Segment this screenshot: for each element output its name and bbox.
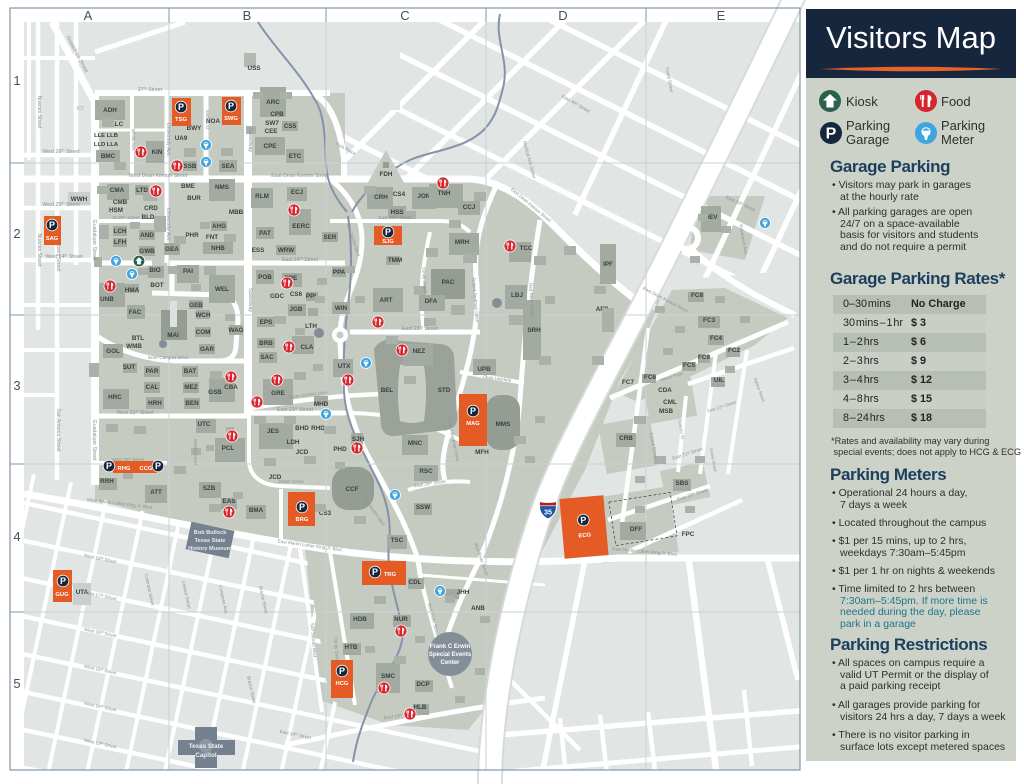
svg-text:West 21ˢᵗ Street: West 21ˢᵗ Street [116, 410, 154, 416]
svg-text:5: 5 [13, 676, 20, 691]
svg-text:BLD: BLD [142, 214, 155, 221]
svg-text:Texas State: Texas State [195, 538, 226, 544]
svg-text:CCJ: CCJ [463, 204, 476, 211]
svg-text:27ᵗʰ Street: 27ᵗʰ Street [138, 87, 163, 93]
svg-text:D: D [558, 8, 567, 23]
svg-text:P: P [470, 406, 476, 416]
svg-text:3: 3 [13, 378, 20, 393]
svg-text:FC9: FC9 [698, 354, 710, 361]
svg-text:FPC: FPC [682, 531, 695, 538]
svg-text:BRB: BRB [259, 340, 273, 347]
svg-text:FC4: FC4 [710, 335, 722, 342]
svg-text:MFH: MFH [475, 449, 489, 456]
svg-text:AHG: AHG [212, 223, 226, 230]
svg-text:Frank C Erwin: Frank C Erwin [430, 644, 471, 650]
svg-text:HDB: HDB [353, 616, 367, 623]
svg-text:MMS: MMS [496, 421, 511, 428]
svg-text:CMA: CMA [110, 187, 125, 194]
svg-text:IC²: IC² [76, 106, 84, 112]
svg-text:Inner Campus Drive: Inner Campus Drive [148, 355, 189, 360]
svg-text:PPA: PPA [333, 269, 346, 276]
svg-text:NUR: NUR [394, 616, 408, 623]
svg-text:Whitis Ave.: Whitis Ave. [131, 129, 136, 152]
svg-text:PAI: PAI [183, 268, 193, 275]
svg-text:PAC: PAC [442, 279, 455, 286]
svg-text:CRH: CRH [374, 194, 388, 201]
svg-text:UTC: UTC [198, 421, 211, 428]
svg-text:East 23ʳᵈ Street: East 23ʳᵈ Street [402, 326, 439, 332]
svg-text:FNT: FNT [206, 234, 218, 241]
svg-text:CS5: CS5 [284, 123, 297, 130]
svg-text:35: 35 [544, 508, 552, 517]
svg-text:UTX: UTX [338, 363, 351, 370]
svg-text:P: P [228, 101, 234, 111]
svg-text:P: P [178, 102, 184, 112]
svg-text:Nueces Street: Nueces Street [36, 234, 42, 267]
svg-text:LTH: LTH [305, 323, 317, 330]
svg-text:CS4: CS4 [393, 191, 406, 198]
svg-text:SUT: SUT [123, 364, 136, 371]
svg-text:East 21ˢᵗ Street: East 21ˢᵗ Street [277, 407, 313, 413]
svg-text:RRH: RRH [100, 478, 114, 485]
svg-text:DFF: DFF [630, 526, 642, 533]
svg-text:SSW: SSW [416, 504, 430, 511]
svg-text:BTL: BTL [132, 335, 144, 342]
svg-text:WIN: WIN [335, 305, 348, 312]
svg-text:Nueces Street: Nueces Street [36, 96, 42, 129]
svg-text:JES: JES [267, 428, 279, 435]
svg-text:P: P [299, 502, 305, 512]
svg-text:MRH: MRH [455, 239, 470, 246]
svg-text:Guadalupe Street: Guadalupe Street [91, 420, 97, 461]
svg-text:P: P [106, 461, 112, 471]
svg-text:West 24ᵗʰ Street: West 24ᵗʰ Street [45, 254, 83, 260]
svg-text:P: P [372, 567, 378, 577]
svg-text:CRB: CRB [619, 435, 633, 442]
svg-text:FC2: FC2 [728, 347, 740, 354]
svg-text:UNB: UNB [100, 296, 114, 303]
svg-text:CS6: CS6 [290, 291, 303, 298]
svg-text:Wichita Street: Wichita Street [193, 439, 198, 466]
svg-text:DFA: DFA [425, 298, 438, 305]
svg-text:CPE: CPE [264, 143, 277, 150]
svg-text:BME: BME [181, 183, 195, 190]
svg-text:NEZ: NEZ [413, 348, 426, 355]
svg-text:BMC: BMC [101, 153, 116, 160]
svg-text:HCG: HCG [336, 681, 349, 687]
svg-text:CCG: CCG [140, 466, 153, 472]
svg-text:POB: POB [258, 274, 272, 281]
svg-text:P: P [49, 220, 55, 230]
svg-text:CEE: CEE [265, 128, 278, 135]
svg-text:RHD: RHD [311, 425, 325, 432]
svg-text:FC6: FC6 [644, 374, 656, 381]
svg-text:SRH: SRH [527, 327, 541, 334]
svg-text:DCP: DCP [416, 681, 429, 688]
svg-text:PAT: PAT [259, 230, 271, 237]
svg-text:SW7: SW7 [265, 120, 279, 127]
svg-text:HRH: HRH [148, 400, 162, 407]
svg-text:CMB: CMB [113, 199, 128, 206]
svg-text:BAT: BAT [184, 368, 197, 375]
svg-text:A: A [84, 8, 93, 23]
svg-text:NHB: NHB [211, 245, 225, 252]
svg-text:JCD: JCD [296, 449, 309, 456]
svg-text:LCH: LCH [114, 228, 127, 235]
svg-text:East 25th Street: East 25th Street [379, 215, 413, 220]
svg-text:BUR: BUR [187, 195, 201, 202]
svg-text:UIL: UIL [714, 377, 724, 384]
svg-text:PCL: PCL [222, 445, 235, 452]
svg-text:History Museum: History Museum [188, 546, 232, 552]
svg-text:CDL: CDL [409, 579, 422, 586]
svg-text:KIN: KIN [152, 149, 163, 156]
svg-text:E: E [717, 8, 726, 23]
svg-text:HTB: HTB [345, 644, 358, 651]
svg-text:FC7: FC7 [622, 379, 634, 386]
svg-text:CAL: CAL [146, 384, 159, 391]
svg-text:SWG: SWG [224, 116, 238, 122]
svg-text:TNH: TNH [438, 190, 451, 197]
svg-text:MAI: MAI [167, 332, 179, 339]
svg-text:UPB: UPB [477, 366, 491, 373]
svg-text:Bob Bullock: Bob Bullock [194, 530, 228, 536]
svg-text:LLD LLA: LLD LLA [94, 142, 119, 148]
svg-text:B: B [243, 8, 252, 23]
svg-text:SAG: SAG [46, 236, 59, 242]
svg-text:East Dean Keeton Street: East Dean Keeton Street [271, 173, 329, 179]
svg-text:SAC: SAC [260, 354, 274, 361]
svg-text:MBB: MBB [229, 209, 244, 216]
svg-text:FC8: FC8 [691, 292, 703, 299]
svg-text:ESS: ESS [252, 247, 265, 254]
svg-text:WMB: WMB [126, 343, 142, 350]
svg-text:West 26ᵗʰ Street: West 26ᵗʰ Street [42, 149, 80, 155]
svg-text:C: C [400, 8, 409, 23]
svg-text:ECJ: ECJ [291, 189, 304, 196]
svg-text:East 24ᵗʰ Street: East 24ᵗʰ Street [282, 257, 319, 263]
svg-text:P: P [385, 227, 391, 237]
svg-text:4: 4 [13, 529, 20, 544]
svg-text:GDC: GDC [270, 293, 284, 300]
svg-text:Speedway: Speedway [247, 128, 253, 153]
svg-text:HRC: HRC [108, 394, 122, 401]
svg-text:GOL: GOL [106, 348, 120, 355]
svg-text:BEN: BEN [185, 400, 199, 407]
svg-text:SER: SER [324, 234, 337, 241]
svg-text:SMC: SMC [381, 673, 395, 680]
svg-text:P: P [60, 576, 66, 586]
svg-text:SZB: SZB [203, 485, 216, 492]
svg-text:ARC: ARC [266, 99, 280, 106]
svg-text:HSM: HSM [109, 207, 123, 214]
svg-text:University Ave.: University Ave. [165, 123, 171, 157]
svg-text:IPF: IPF [603, 261, 613, 268]
svg-text:Capitol: Capitol [195, 752, 217, 759]
svg-text:CPB: CPB [270, 111, 284, 118]
svg-text:GWB: GWB [139, 248, 155, 255]
svg-text:PAR: PAR [146, 368, 159, 375]
svg-text:LDH: LDH [287, 439, 300, 446]
svg-text:Special Events: Special Events [429, 652, 472, 658]
svg-text:FAC: FAC [129, 309, 142, 316]
svg-text:Speedway: Speedway [247, 288, 253, 313]
svg-text:FDH: FDH [380, 171, 393, 178]
svg-text:GEB: GEB [189, 302, 203, 309]
svg-text:JGB: JGB [290, 306, 303, 313]
svg-text:GUG: GUG [55, 592, 69, 598]
svg-text:RSC: RSC [419, 468, 433, 475]
svg-text:FC3: FC3 [703, 317, 715, 324]
svg-text:SBS: SBS [676, 480, 689, 487]
svg-text:EERC: EERC [292, 223, 310, 230]
svg-text:P: P [826, 126, 837, 143]
svg-text:LBJ: LBJ [511, 292, 523, 299]
svg-text:CDA: CDA [658, 387, 672, 394]
svg-text:Guadalupe Street: Guadalupe Street [91, 220, 97, 261]
svg-text:2: 2 [13, 226, 20, 241]
svg-text:LFH: LFH [114, 239, 127, 246]
svg-text:W 25ᵗʰ Street: W 25ᵗʰ Street [112, 215, 140, 220]
svg-text:P: P [155, 461, 161, 471]
svg-text:WRW: WRW [278, 247, 294, 254]
svg-text:BEL: BEL [381, 387, 394, 394]
svg-text:1: 1 [13, 73, 20, 88]
svg-text:Center: Center [440, 660, 460, 666]
svg-text:MHD: MHD [314, 401, 329, 408]
svg-text:WAG: WAG [228, 327, 243, 334]
svg-text:WEL: WEL [215, 286, 229, 293]
svg-text:RHG: RHG [118, 466, 131, 472]
svg-text:CBA: CBA [224, 384, 238, 391]
svg-text:USS: USS [248, 65, 261, 72]
svg-text:CLA: CLA [301, 344, 314, 351]
svg-text:Texas State: Texas State [189, 743, 224, 750]
svg-text:BWY: BWY [187, 125, 202, 132]
svg-text:ECG: ECG [578, 532, 592, 539]
svg-text:ETC: ETC [289, 153, 302, 160]
svg-text:AND: AND [140, 232, 154, 239]
svg-text:MAG: MAG [466, 421, 480, 427]
svg-text:ADH: ADH [103, 107, 117, 114]
svg-text:ATT: ATT [150, 489, 162, 496]
svg-text:CML: CML [663, 399, 677, 406]
svg-text:GSB: GSB [208, 389, 222, 396]
svg-text:TSC: TSC [391, 537, 404, 544]
svg-text:LLE LLB: LLE LLB [94, 133, 118, 139]
svg-text:BMA: BMA [249, 507, 264, 514]
svg-text:HLB: HLB [414, 704, 427, 711]
svg-text:GAR: GAR [200, 346, 214, 353]
svg-text:P: P [580, 515, 587, 525]
svg-text:NMS: NMS [215, 184, 229, 191]
svg-text:WCH: WCH [195, 312, 210, 319]
svg-text:West 25ᵗʰ Street: West 25ᵗʰ Street [42, 202, 80, 208]
svg-text:Jester Circle: Jester Circle [278, 479, 304, 484]
svg-text:TSG: TSG [175, 117, 187, 123]
svg-text:CCF: CCF [346, 486, 359, 493]
svg-text:PHR: PHR [185, 232, 199, 239]
svg-text:SSB: SSB [184, 163, 197, 170]
svg-text:COM: COM [196, 329, 211, 336]
svg-text:PHD: PHD [333, 446, 347, 453]
svg-text:BHD: BHD [295, 425, 309, 432]
svg-text:University Ave.: University Ave. [165, 208, 171, 242]
svg-text:BOT: BOT [150, 282, 163, 289]
svg-text:HMA: HMA [125, 287, 140, 294]
svg-text:BIO: BIO [149, 267, 160, 274]
svg-text:RLM: RLM [255, 193, 269, 200]
svg-text:MNC: MNC [408, 440, 423, 447]
svg-text:Wichita St.: Wichita St. [205, 110, 210, 130]
svg-text:MSB: MSB [659, 408, 673, 415]
svg-text:EPS: EPS [260, 319, 273, 326]
svg-text:P: P [339, 666, 345, 676]
svg-text:MEZ: MEZ [184, 384, 197, 391]
svg-text:SJG: SJG [382, 239, 394, 245]
svg-text:TCC: TCC [520, 245, 533, 252]
svg-text:San Antonio Street: San Antonio Street [55, 408, 61, 452]
svg-text:ART: ART [380, 297, 393, 304]
svg-text:UA9: UA9 [175, 135, 188, 142]
svg-text:JON: JON [418, 193, 431, 200]
svg-text:FC5: FC5 [683, 362, 695, 369]
svg-text:SEA: SEA [222, 163, 235, 170]
svg-text:GEA: GEA [165, 246, 179, 253]
svg-text:BRG: BRG [296, 517, 309, 523]
svg-text:TRG: TRG [384, 572, 397, 578]
svg-text:GRE: GRE [271, 390, 285, 397]
svg-text:STD: STD [438, 387, 451, 394]
svg-text:JHH: JHH [457, 589, 470, 596]
svg-text:EAS: EAS [223, 498, 236, 505]
svg-text:TMM: TMM [388, 257, 402, 264]
svg-text:CRD: CRD [144, 205, 158, 212]
svg-text:ANB: ANB [471, 605, 485, 612]
svg-text:West Dean Keeton Street: West Dean Keeton Street [129, 173, 188, 179]
